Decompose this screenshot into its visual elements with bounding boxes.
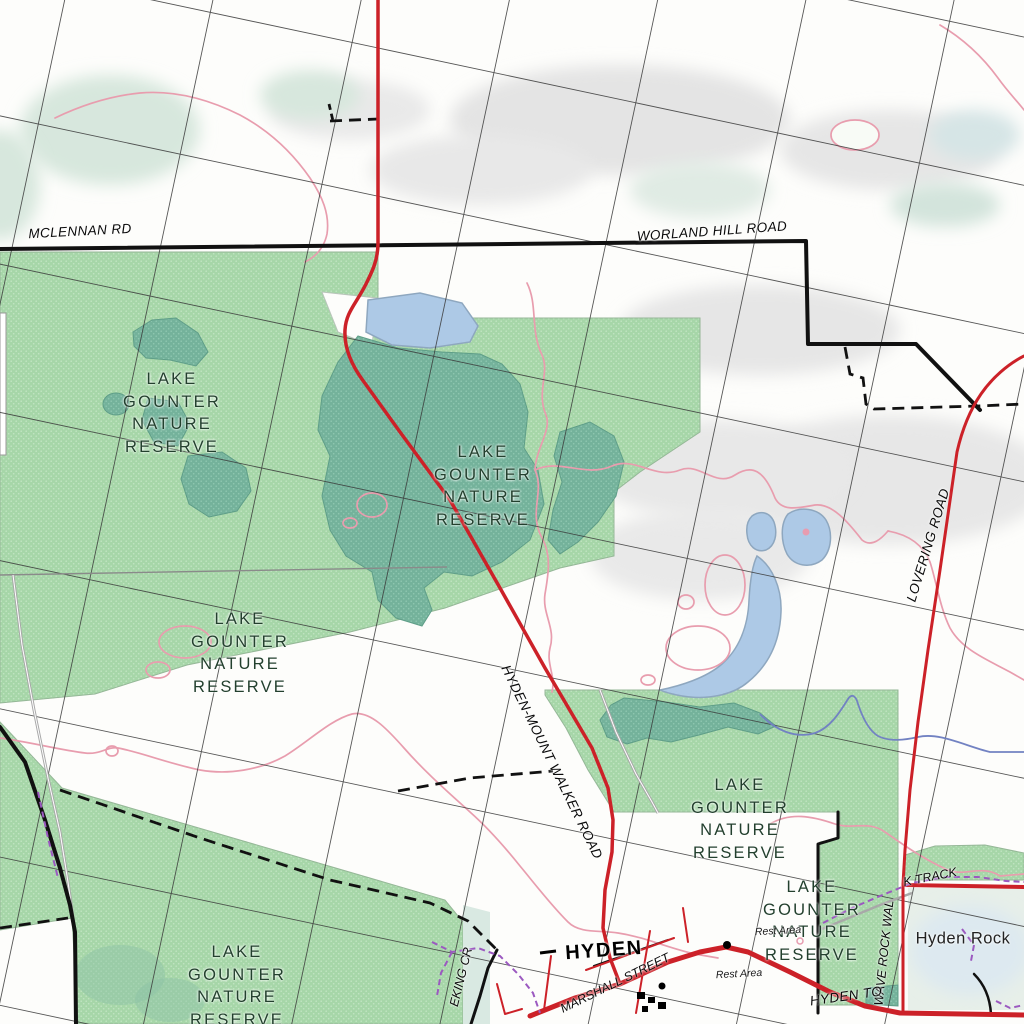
edge-sliver	[0, 313, 6, 455]
map-canvas	[0, 0, 1024, 1024]
map-viewport: LAKE GOUNTER NATURE RESERVE LAKE GOUNTER…	[0, 0, 1024, 1024]
rest-area-marker-1	[723, 941, 731, 949]
town-features	[540, 938, 803, 1012]
east-road	[905, 885, 1024, 887]
small-lake-1	[747, 513, 776, 551]
reserve-southwest-block	[0, 722, 463, 1024]
rest-area-marker-2	[659, 983, 666, 990]
hyden-dash	[540, 951, 556, 953]
small-lake-2	[782, 509, 830, 565]
lake-gounter-main	[366, 293, 478, 348]
town-streets	[497, 908, 688, 1014]
reserve-south-block	[545, 690, 898, 1005]
